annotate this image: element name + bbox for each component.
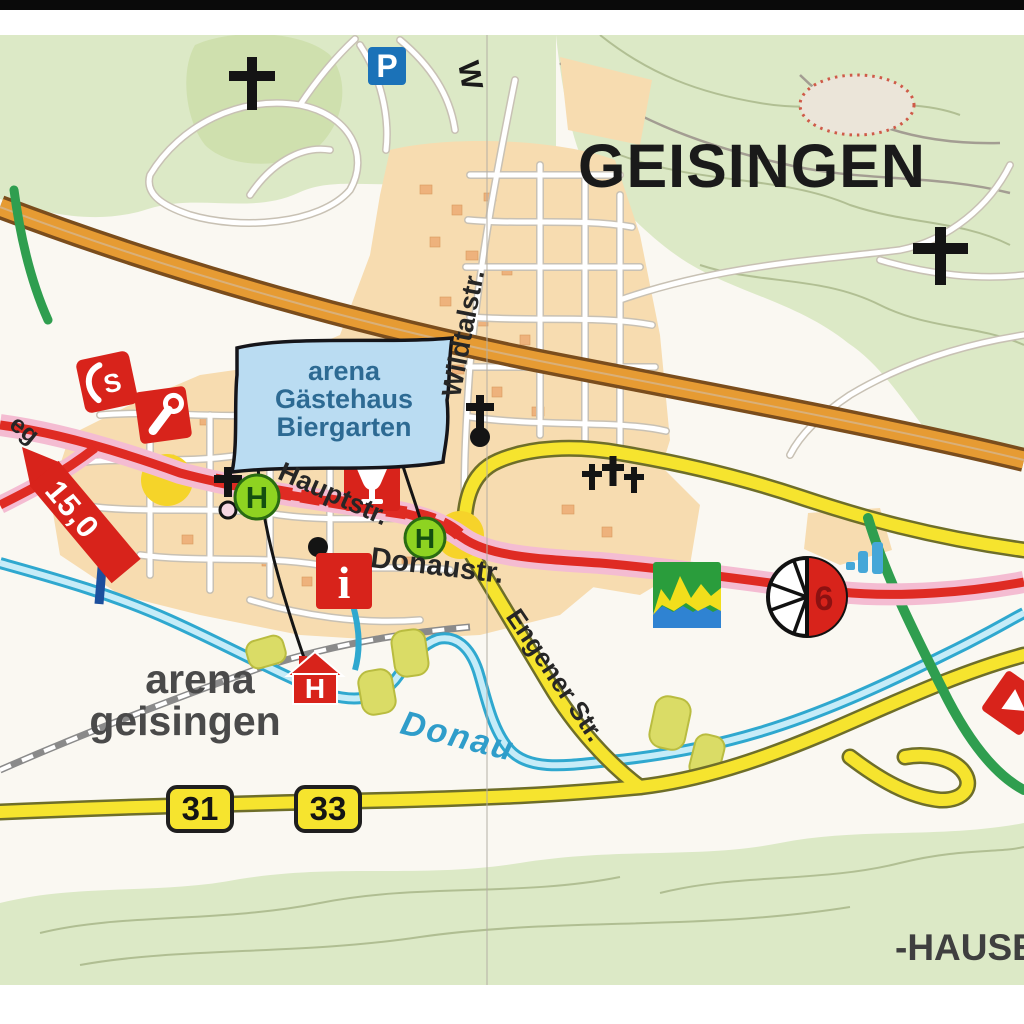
parking-letter: P [376,48,397,84]
arena-label-line1: arena [145,656,256,702]
cliff-quarry-symbol [800,75,914,135]
info-icon: i [316,553,372,609]
banner-line3: Biergarten [276,412,411,442]
banner-line1: arena [308,356,381,386]
banner-line2: Gästehaus [275,384,413,414]
neighbor-town-label: -HAUSE [895,927,1024,968]
info-letter: i [338,557,351,608]
road-badge-31: 31 [168,787,232,831]
repair-wrench-icon [134,386,193,445]
road-badge-33: 33 [296,787,360,831]
hotel-letter: H [305,673,325,704]
road-badge-33-number: 33 [310,790,347,827]
map-canvas[interactable]: P W S H H [0,35,1024,985]
arena-label-line2: geisingen [89,698,280,744]
ski-lift-icon: S [75,350,139,414]
cycle-route-wheel-badge: 6 [768,558,846,636]
bus-stop-letter: H [246,480,268,515]
top-black-bar [0,0,1024,10]
map-screenshot: P W S H H [0,0,1024,1024]
parking-icon: P [368,47,406,85]
arena-banner: arena Gästehaus Biergarten [232,338,452,472]
town-title-label: GEISINGEN [578,132,926,200]
road-badge-31-number: 31 [182,790,219,827]
bus-stop-icon: H [235,475,279,519]
nature-park-icon [653,562,721,628]
cycle-route-number: 6 [815,580,834,618]
